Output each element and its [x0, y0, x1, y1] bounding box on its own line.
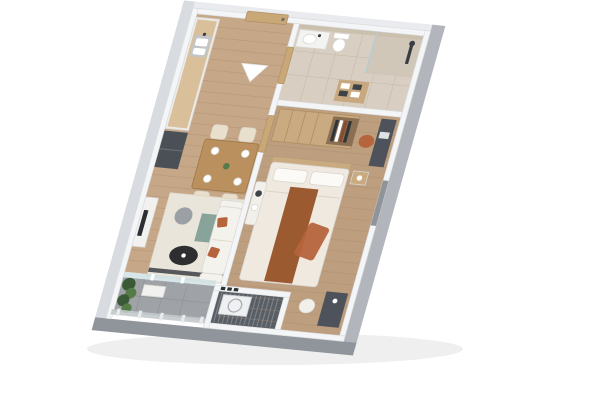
sofa-pillow-rust-1: [217, 217, 228, 228]
floor-plan-svg: [0, 0, 600, 400]
ac-unit: [218, 295, 251, 317]
sink-bowl-1: [195, 38, 209, 47]
towel-white: [340, 83, 350, 89]
towel-dark-2: [352, 84, 362, 90]
balcony-planter-bench: [141, 285, 166, 298]
sink-bowl-2: [192, 48, 206, 56]
vent-grille-2: [227, 287, 232, 291]
vent-grille-3: [233, 288, 238, 292]
bed-pillow-left: [272, 168, 308, 184]
towel-white-2: [350, 92, 360, 98]
toilet-tank: [333, 33, 350, 40]
apartment-unit: [92, 1, 446, 356]
floor-plan-image: [0, 0, 600, 400]
vent-grille-1: [220, 287, 225, 291]
bed-pillow-right: [309, 171, 345, 187]
technical-closet: [218, 295, 251, 317]
laptop: [378, 132, 390, 139]
towel-dark: [338, 90, 348, 96]
